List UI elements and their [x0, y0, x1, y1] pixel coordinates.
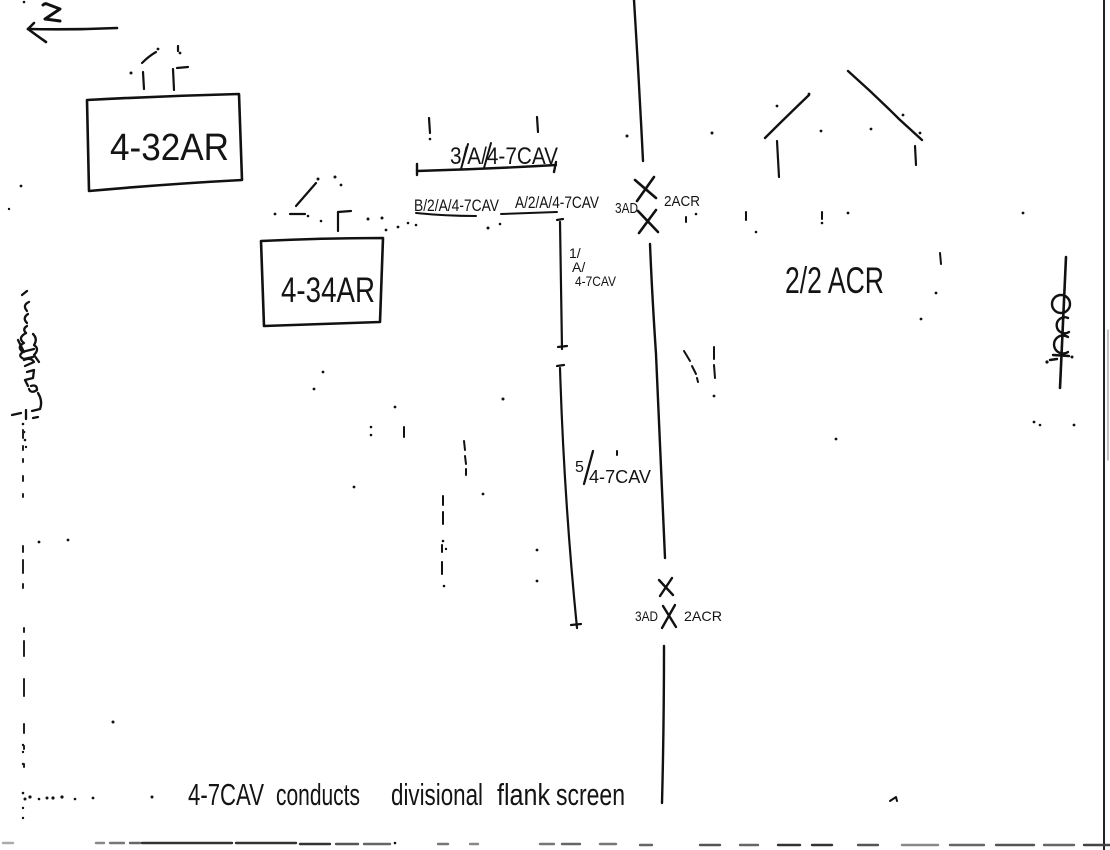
svg-text:4-7CAV: 4-7CAV — [589, 467, 651, 487]
svg-text:flank: flank — [497, 777, 550, 812]
svg-text:conducts: conducts — [276, 777, 360, 812]
svg-text:4-34AR: 4-34AR — [281, 271, 375, 310]
svg-text:2ACR: 2ACR — [684, 608, 722, 624]
svg-text:screen: screen — [556, 777, 625, 812]
svg-text:divisional: divisional — [391, 777, 483, 812]
svg-text:4-7CAV: 4-7CAV — [575, 273, 617, 289]
svg-text:A/2/A/4-7CAV: A/2/A/4-7CAV — [515, 193, 600, 212]
svg-text:3AD: 3AD — [635, 608, 658, 624]
svg-text:3AD: 3AD — [615, 200, 638, 217]
svg-text:2/2 ACR: 2/2 ACR — [785, 260, 884, 301]
svg-text:B/2/A/4-7CAV: B/2/A/4-7CAV — [414, 196, 500, 215]
svg-text:4-7CAV: 4-7CAV — [188, 777, 264, 812]
svg-text:4-32AR: 4-32AR — [110, 127, 229, 169]
svg-text:2ACR: 2ACR — [664, 193, 700, 210]
svg-text:5: 5 — [575, 459, 584, 476]
